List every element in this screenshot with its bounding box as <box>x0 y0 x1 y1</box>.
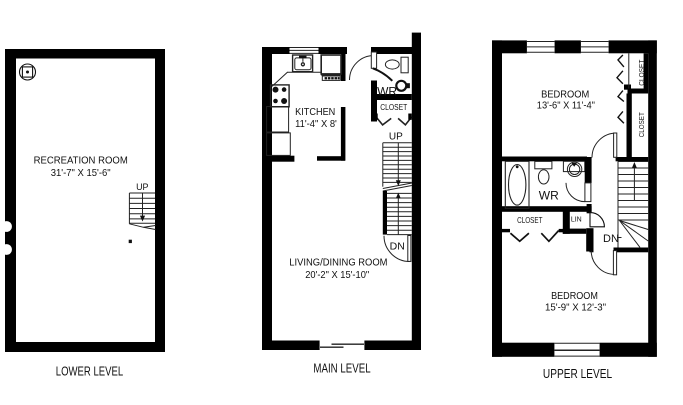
svg-text:KITCHEN: KITCHEN <box>295 106 335 118</box>
svg-text:UP: UP <box>389 131 403 142</box>
svg-text:RECREATION ROOM: RECREATION ROOM <box>34 155 128 167</box>
svg-text:20'-2" X 15'-10": 20'-2" X 15'-10" <box>305 269 369 281</box>
svg-text:CLOSET: CLOSET <box>517 215 542 225</box>
svg-text:LOWER LEVEL: LOWER LEVEL <box>56 364 123 378</box>
svg-text:BEDROOM: BEDROOM <box>551 290 598 302</box>
svg-text:11'-4" X 8': 11'-4" X 8' <box>295 118 337 130</box>
svg-text:LIVING/DINING ROOM: LIVING/DINING ROOM <box>289 257 387 269</box>
svg-text:UPPER LEVEL: UPPER LEVEL <box>543 367 612 381</box>
svg-text:CLOSET: CLOSET <box>637 112 646 137</box>
svg-text:WR: WR <box>377 85 397 99</box>
svg-text:DN: DN <box>390 240 405 252</box>
svg-text:LIN: LIN <box>571 217 582 224</box>
svg-text:DN: DN <box>603 233 619 245</box>
svg-text:MAIN LEVEL: MAIN LEVEL <box>313 362 370 376</box>
svg-text:WR: WR <box>539 188 559 202</box>
svg-text:15'-9" X 12'-3": 15'-9" X 12'-3" <box>545 301 606 313</box>
svg-text:UP: UP <box>136 182 148 193</box>
svg-text:13'-6" X 11'-4": 13'-6" X 11'-4" <box>537 99 595 111</box>
svg-text:CLOSET: CLOSET <box>637 59 646 85</box>
svg-text:31'-7" X 15'-6": 31'-7" X 15'-6" <box>51 167 111 179</box>
svg-text:CLOSET: CLOSET <box>380 103 407 112</box>
